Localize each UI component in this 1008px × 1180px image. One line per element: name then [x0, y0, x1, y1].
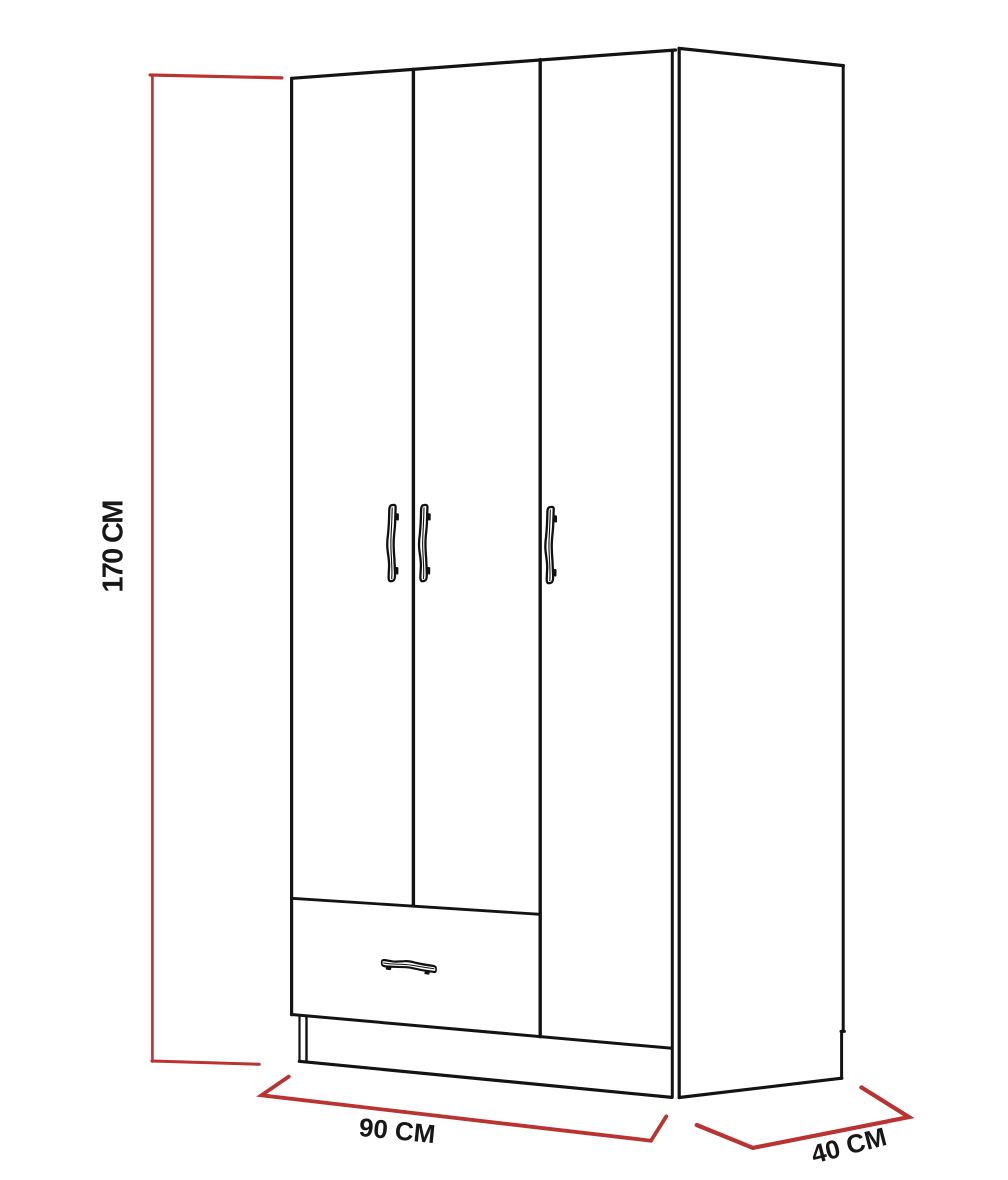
svg-text:170 CM: 170 CM — [98, 501, 130, 593]
svg-text:90 CM: 90 CM — [358, 1112, 437, 1149]
